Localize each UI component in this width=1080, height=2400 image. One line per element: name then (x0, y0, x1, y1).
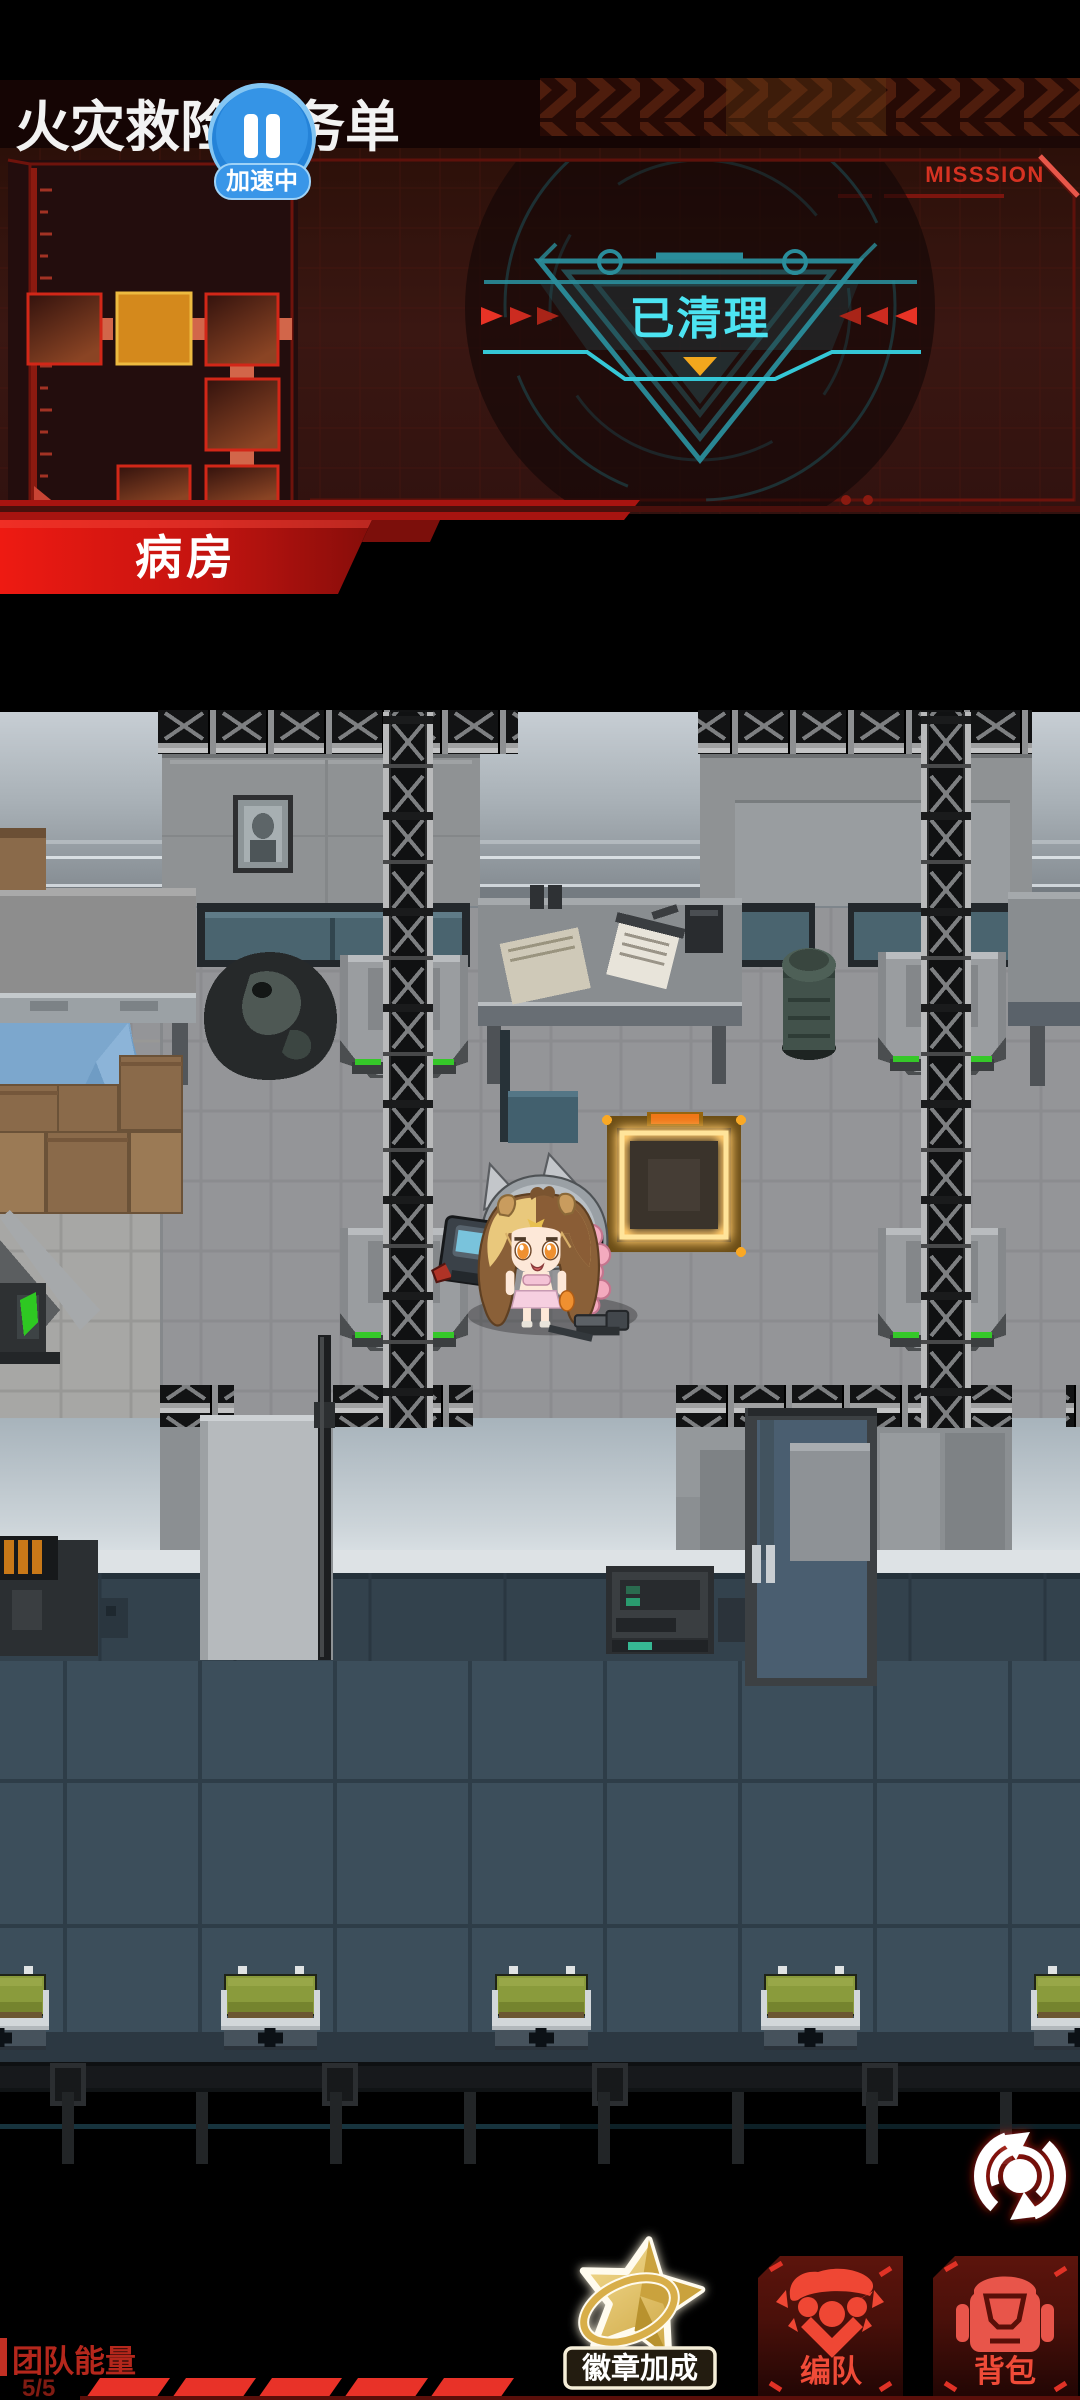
svg-text:MISSSION: MISSSION (925, 162, 1045, 187)
svg-text:加速中: 加速中 (226, 168, 298, 195)
svg-text:病房: 病房 (135, 531, 237, 584)
svg-text:团队能量: 团队能量 (12, 2344, 136, 2379)
svg-text:火灾救险任务单: 火灾救险任务单 (15, 96, 400, 158)
svg-text:5/5: 5/5 (22, 2375, 55, 2400)
svg-text:背包: 背包 (974, 2354, 1036, 2389)
svg-text:已清理: 已清理 (629, 293, 770, 344)
svg-text:编队: 编队 (800, 2354, 863, 2389)
svg-text:徽章加成: 徽章加成 (581, 2351, 698, 2385)
